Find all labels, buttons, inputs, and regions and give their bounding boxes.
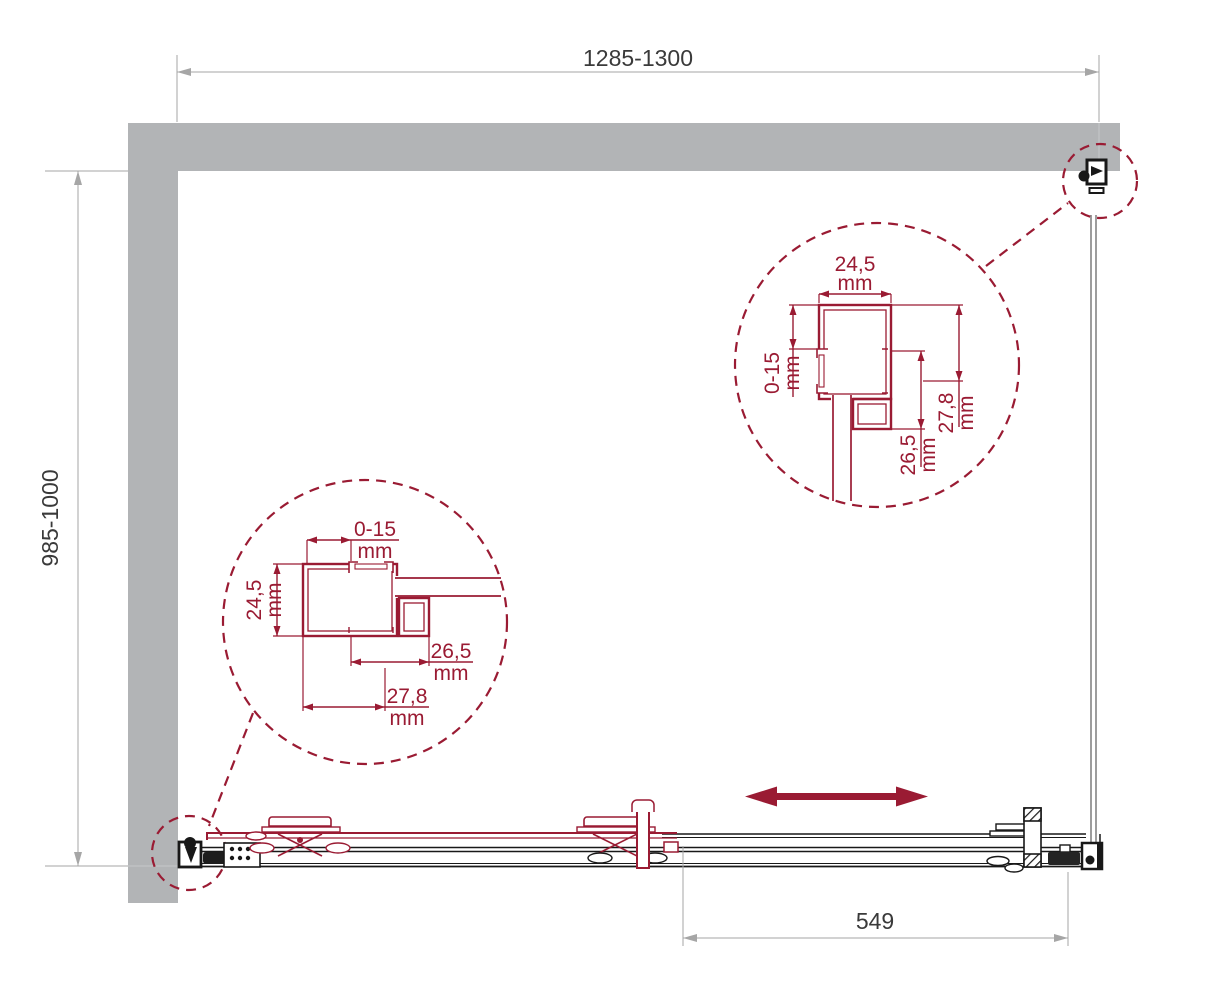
- detail-left-dim-bottom: 27,8 mm: [303, 636, 429, 730]
- svg-text:mm: mm: [263, 583, 286, 618]
- detail-circle-left: 0-15 mm 24,5 mm 26,5 mm: [215, 472, 515, 772]
- wall-top: [128, 123, 1120, 171]
- svg-text:27,8: 27,8: [387, 685, 428, 708]
- roller-carriage-right: [987, 808, 1041, 872]
- svg-text:mm: mm: [955, 396, 978, 431]
- svg-text:0-15: 0-15: [354, 518, 396, 541]
- svg-text:mm: mm: [917, 438, 940, 473]
- detail-right-dim-right: 27,8 mm: [891, 305, 978, 433]
- detail-right-dim-top: 24,5 mm: [819, 253, 891, 303]
- svg-text:mm: mm: [390, 707, 425, 730]
- svg-text:mm: mm: [358, 540, 393, 563]
- wall-left: [128, 171, 178, 903]
- slide-direction-arrow-icon: [745, 787, 928, 807]
- svg-text:26,5: 26,5: [431, 640, 472, 663]
- detail-left-dim-right: 26,5 mm: [351, 636, 473, 685]
- profile-section-left: [303, 561, 501, 636]
- installation-drawing: 1285-1300 985-1000: [0, 0, 1205, 993]
- dimension-top-label: 1285-1300: [583, 45, 693, 71]
- detail-right-dim-inner: 26,5 mm: [891, 351, 940, 475]
- dimension-left-label: 985-1000: [37, 469, 63, 566]
- svg-text:mm: mm: [781, 356, 804, 391]
- detail-left-dim-top: 0-15 mm: [307, 518, 399, 564]
- svg-text:mm: mm: [838, 272, 873, 295]
- svg-text:mm: mm: [434, 662, 469, 685]
- right-glass-panel: [1091, 215, 1096, 846]
- detail-right-dim-left: 0-15 mm: [761, 305, 819, 397]
- detail-circle-right: 24,5 mm 0-15 mm 27,8 mm: [727, 215, 1027, 515]
- dimension-bottom: 549: [683, 846, 1068, 946]
- detail-left-dim-left: 24,5 mm: [243, 564, 303, 636]
- profile-section-right: [816, 305, 891, 501]
- dimension-bottom-label: 549: [856, 908, 894, 934]
- bottom-track-assembly: [178, 800, 1103, 872]
